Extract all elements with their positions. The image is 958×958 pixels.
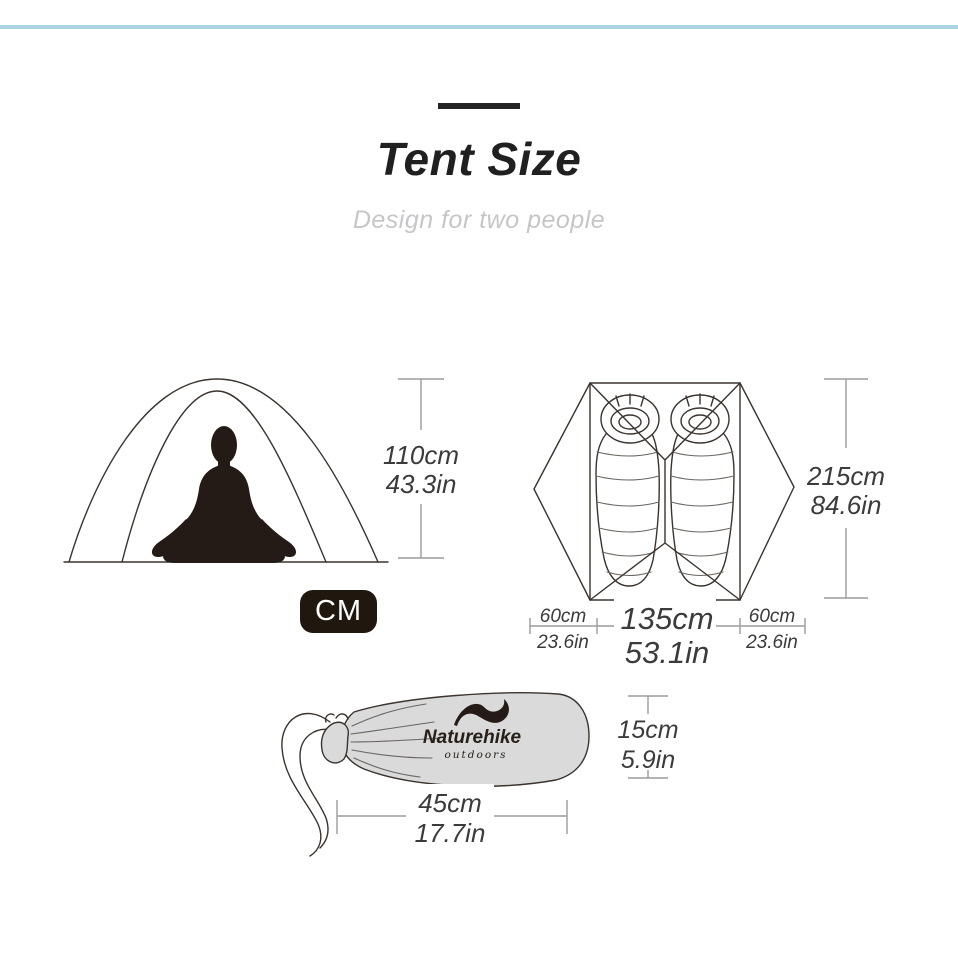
left-vestibule-inch: 23.6in xyxy=(536,632,589,653)
cm-unit-label: CM xyxy=(315,595,362,628)
tent-top-view-illustration xyxy=(528,376,800,604)
cm-unit-badge: CM xyxy=(300,590,377,633)
page-title: Tent Size xyxy=(0,132,958,186)
brand-tagline: outdoors xyxy=(444,749,507,761)
inner-width-cm: 135cm xyxy=(620,601,713,636)
tent-footprint-outline xyxy=(534,383,794,600)
bag-height-inch: 5.9in xyxy=(621,746,675,774)
bag-height-dimension: 15cm 5.9in xyxy=(600,688,696,788)
bag-length-inch: 17.7in xyxy=(415,818,486,848)
front-height-cm: 110cm xyxy=(383,440,459,470)
tent-front-view-illustration xyxy=(56,372,390,568)
sleeping-bag-right xyxy=(671,394,734,586)
right-vestibule-cm: 60cm xyxy=(749,606,795,627)
bag-length-dimension: 45cm 17.7in xyxy=(318,782,582,852)
front-height-dimension: 110cm 43.3in xyxy=(376,374,468,566)
brand-text: Naturehike xyxy=(423,727,522,748)
bag-length-cm: 45cm xyxy=(418,788,482,818)
person-silhouette xyxy=(152,426,296,563)
front-height-inch: 43.3in xyxy=(386,469,457,499)
right-vestibule-inch: 23.6in xyxy=(745,632,798,653)
title-dash xyxy=(438,103,520,109)
left-vestibule-cm: 60cm xyxy=(540,606,586,627)
top-length-cm: 215cm xyxy=(806,461,885,491)
top-length-dimension: 215cm 84.6in xyxy=(798,374,898,604)
tent-size-infographic: Tent Size Design for two people 110cm 43… xyxy=(0,0,958,958)
accent-line xyxy=(0,25,958,29)
inner-width-inch: 53.1in xyxy=(625,635,709,670)
bottom-width-dimensions: 60cm 23.6in 135cm 53.1in 60cm 23.6in xyxy=(518,592,820,670)
page-subtitle: Design for two people xyxy=(0,206,958,235)
sleeping-bag-left xyxy=(596,394,659,586)
bag-height-cm: 15cm xyxy=(617,716,678,744)
top-length-inch: 84.6in xyxy=(811,490,882,520)
